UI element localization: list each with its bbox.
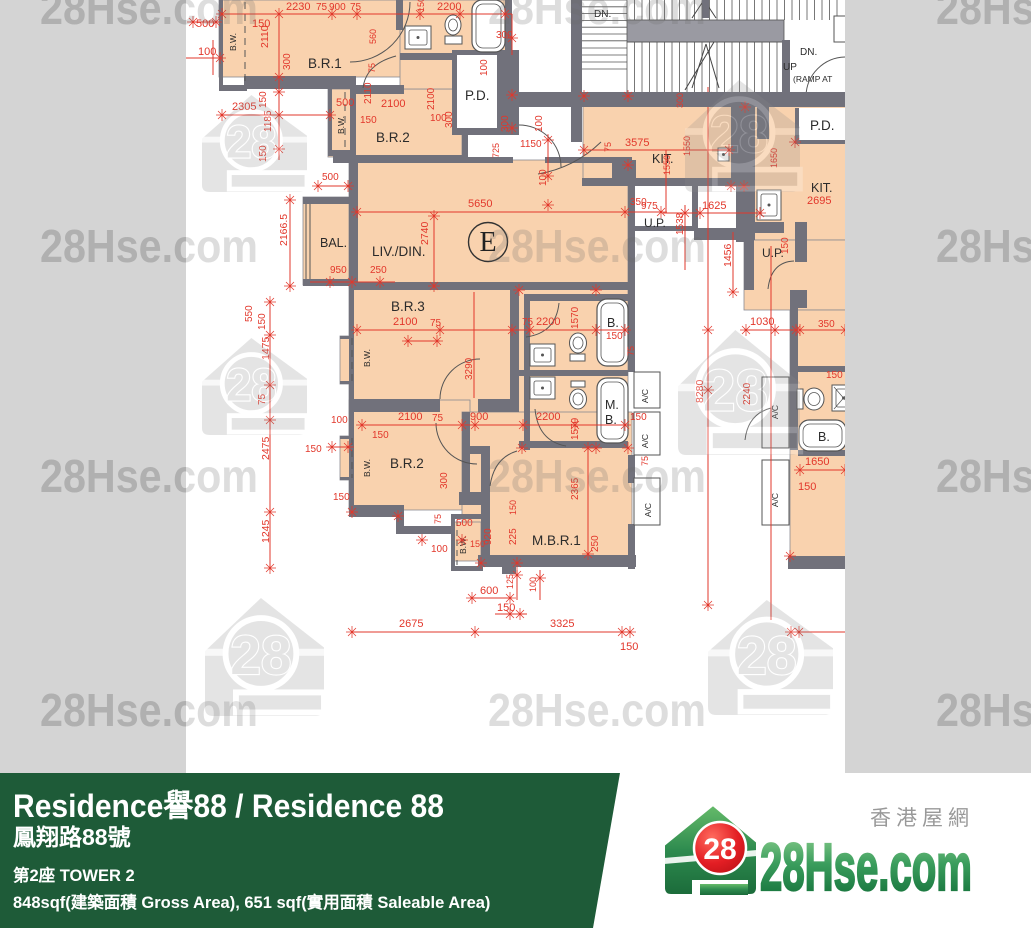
svg-text:1245: 1245: [260, 519, 272, 543]
svg-text:2110: 2110: [363, 82, 374, 104]
svg-text:1570: 1570: [570, 306, 581, 329]
svg-text:P.D.: P.D.: [465, 88, 490, 103]
svg-text:B.: B.: [818, 430, 830, 444]
svg-text:28Hse.com: 28Hse.com: [936, 450, 1031, 502]
svg-text:2100: 2100: [426, 87, 437, 110]
svg-text:150: 150: [620, 641, 638, 653]
svg-text:560: 560: [368, 29, 378, 44]
svg-text:28: 28: [226, 359, 276, 410]
svg-text:2230: 2230: [286, 1, 310, 13]
svg-text:100: 100: [331, 415, 348, 426]
svg-text:150: 150: [416, 0, 426, 12]
svg-text:600: 600: [480, 585, 498, 597]
svg-text:848sqf(建築面積 Gross Area), 651 s: 848sqf(建築面積 Gross Area), 651 sqf(實用面積 Sa…: [13, 892, 490, 912]
svg-text:500: 500: [322, 172, 339, 183]
svg-text:150: 150: [508, 500, 518, 515]
svg-text:鳳翔路88號: 鳳翔路88號: [13, 824, 131, 850]
svg-text:1570: 1570: [570, 417, 581, 440]
svg-text:2695: 2695: [807, 195, 831, 207]
svg-text:100: 100: [431, 544, 448, 555]
svg-text:300: 300: [444, 111, 455, 128]
svg-text:BAL.: BAL.: [320, 236, 347, 250]
svg-text:2100: 2100: [393, 316, 417, 328]
svg-text:150: 150: [360, 115, 377, 126]
svg-text:UP: UP: [783, 62, 797, 73]
svg-text:150: 150: [798, 481, 816, 493]
svg-text:28Hse.com: 28Hse.com: [760, 830, 972, 905]
svg-text:75: 75: [433, 514, 443, 524]
svg-text:100: 100: [479, 59, 490, 76]
svg-text:28Hse.com: 28Hse.com: [488, 220, 706, 272]
svg-text:DN.: DN.: [800, 47, 817, 58]
svg-text:100: 100: [528, 577, 538, 592]
svg-text:第2座 TOWER 2: 第2座 TOWER 2: [13, 865, 135, 885]
svg-text:2166.5: 2166.5: [278, 214, 290, 246]
svg-text:75: 75: [350, 2, 362, 13]
svg-text:75: 75: [603, 142, 613, 152]
svg-text:B.W.: B.W.: [336, 116, 346, 134]
svg-text:2740: 2740: [419, 221, 431, 245]
svg-text:B.W.: B.W.: [362, 349, 372, 367]
svg-text:75: 75: [367, 63, 377, 73]
svg-text:250: 250: [370, 265, 387, 276]
svg-text:150: 150: [372, 430, 389, 441]
svg-text:5650: 5650: [468, 198, 492, 210]
svg-text:150: 150: [257, 313, 268, 330]
svg-text:150: 150: [305, 444, 322, 455]
svg-text:2100: 2100: [381, 98, 405, 110]
svg-text:920: 920: [483, 528, 494, 545]
svg-text:KIT.: KIT.: [811, 181, 833, 195]
svg-text:900: 900: [329, 2, 346, 13]
svg-text:28: 28: [703, 833, 736, 866]
svg-text:150: 150: [497, 602, 515, 614]
svg-text:M.: M.: [605, 398, 619, 412]
svg-text:300: 300: [439, 472, 450, 489]
svg-text:950: 950: [330, 265, 347, 276]
svg-text:1650: 1650: [805, 456, 829, 468]
svg-text:B.W.: B.W.: [228, 33, 238, 51]
svg-text:2110: 2110: [259, 25, 271, 48]
svg-text:28Hse.com: 28Hse.com: [936, 0, 1031, 34]
svg-text:2200: 2200: [536, 411, 560, 423]
svg-text:LIV./DIN.: LIV./DIN.: [372, 244, 426, 259]
svg-text:P.D.: P.D.: [810, 118, 835, 133]
svg-text:1456: 1456: [722, 243, 734, 267]
svg-text:3325: 3325: [550, 618, 574, 630]
svg-text:B.R.2: B.R.2: [376, 130, 410, 145]
svg-text:150: 150: [333, 492, 350, 503]
svg-text:75: 75: [316, 2, 328, 13]
svg-text:28: 28: [710, 106, 768, 164]
svg-text:Residence譽88 / Residence 88: Residence譽88 / Residence 88: [13, 788, 444, 824]
svg-text:A/C: A/C: [643, 503, 653, 517]
svg-text:28: 28: [230, 624, 291, 686]
svg-text:3575: 3575: [625, 137, 649, 149]
svg-text:1150: 1150: [520, 139, 542, 150]
svg-text:550: 550: [244, 305, 255, 322]
svg-text:300: 300: [500, 115, 511, 132]
svg-text:225: 225: [508, 528, 519, 545]
svg-text:香港屋網: 香港屋網: [870, 807, 974, 830]
svg-text:2200: 2200: [437, 1, 461, 13]
svg-text:150: 150: [606, 331, 623, 342]
svg-text:2100: 2100: [398, 411, 422, 423]
svg-text:300: 300: [675, 93, 685, 108]
svg-text:150: 150: [630, 412, 647, 423]
svg-text:28Hse.com: 28Hse.com: [936, 220, 1031, 272]
svg-text:A/C: A/C: [640, 389, 650, 403]
svg-text:B.W.: B.W.: [362, 459, 372, 477]
svg-text:B.R.1: B.R.1: [308, 56, 342, 71]
svg-text:100: 100: [538, 169, 549, 186]
svg-text:75: 75: [430, 318, 442, 329]
svg-text:28: 28: [703, 359, 768, 424]
svg-text:28Hse.com: 28Hse.com: [488, 0, 706, 34]
svg-text:1550: 1550: [662, 155, 672, 175]
svg-text:975: 975: [641, 201, 658, 212]
svg-text:1030: 1030: [750, 316, 774, 328]
svg-text:3290: 3290: [464, 357, 475, 380]
svg-text:350: 350: [818, 319, 835, 330]
svg-text:28: 28: [226, 116, 276, 167]
svg-text:150: 150: [780, 237, 791, 254]
svg-text:725: 725: [491, 143, 501, 158]
svg-text:2675: 2675: [399, 618, 423, 630]
svg-text:2475: 2475: [260, 436, 272, 460]
svg-text:28Hse.com: 28Hse.com: [936, 684, 1031, 736]
svg-text:900: 900: [470, 411, 488, 423]
svg-text:75: 75: [432, 413, 444, 424]
svg-text:(RAMP AT: (RAMP AT: [793, 74, 832, 84]
svg-text:B.R.3: B.R.3: [391, 299, 425, 314]
svg-text:M.B.R.1: M.B.R.1: [532, 533, 581, 548]
svg-text:100: 100: [534, 115, 545, 132]
svg-text:250: 250: [590, 535, 601, 552]
svg-text:500: 500: [336, 97, 354, 109]
svg-text:300: 300: [282, 53, 293, 70]
svg-text:2200: 2200: [536, 316, 560, 328]
svg-text:28Hse.com: 28Hse.com: [488, 450, 706, 502]
svg-text:28: 28: [737, 627, 796, 686]
svg-text:75: 75: [626, 346, 636, 356]
svg-text:A/C: A/C: [640, 434, 650, 448]
svg-text:B.: B.: [607, 316, 619, 330]
svg-text:100: 100: [198, 46, 216, 58]
svg-text:125: 125: [505, 574, 515, 589]
svg-text:28Hse.com: 28Hse.com: [488, 684, 706, 736]
svg-text:150: 150: [826, 370, 843, 381]
svg-text:B.R.2: B.R.2: [390, 456, 424, 471]
svg-text:500: 500: [456, 518, 473, 529]
svg-text:1625: 1625: [702, 200, 726, 212]
svg-text:75: 75: [522, 317, 534, 328]
